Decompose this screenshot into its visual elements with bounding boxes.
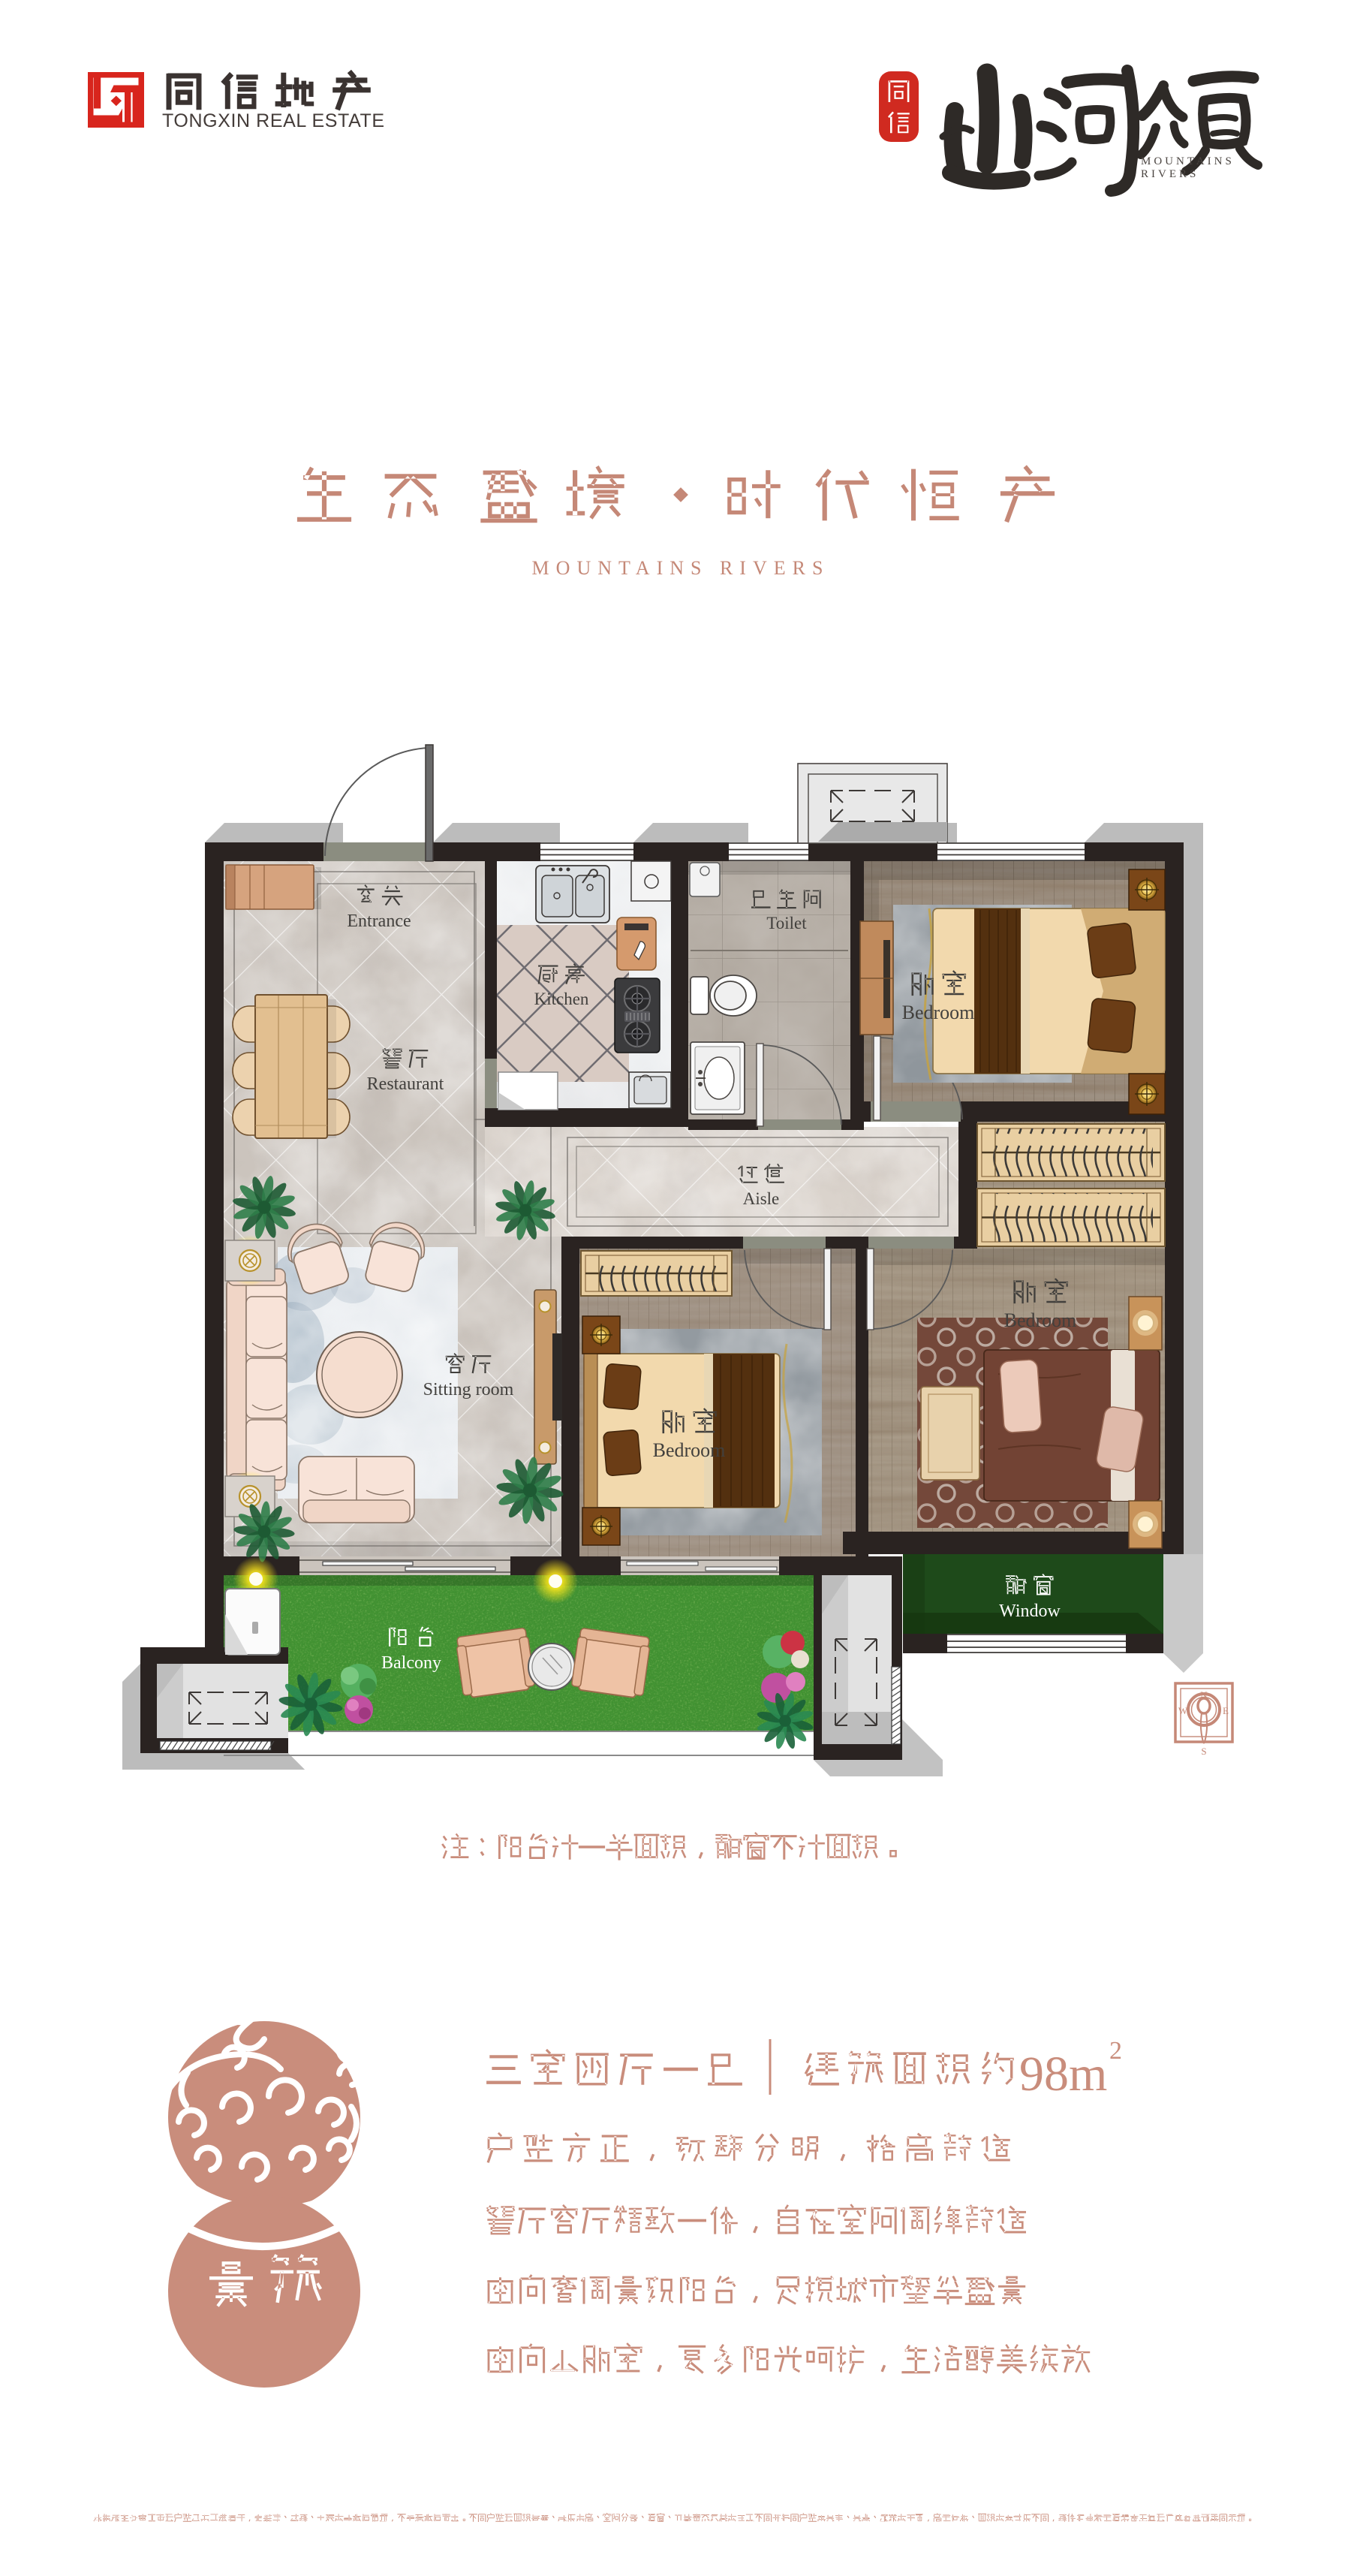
svg-text:Window: Window <box>999 1601 1061 1621</box>
svg-text:MOUNTAINS: MOUNTAINS <box>1141 155 1235 167</box>
svg-text:Entrance: Entrance <box>347 911 411 931</box>
svg-text:S: S <box>1201 1746 1206 1757</box>
svg-text:W: W <box>1178 1705 1188 1716</box>
svg-text:RIVERS: RIVERS <box>1141 168 1199 180</box>
svg-text:Kitchen: Kitchen <box>534 990 589 1008</box>
svg-text:Sitting room: Sitting room <box>423 1380 514 1399</box>
svg-text:Bedroom: Bedroom <box>902 1002 975 1023</box>
svg-text:TONGXIN REAL ESTATE: TONGXIN REAL ESTATE <box>162 110 385 131</box>
svg-text:Restaurant: Restaurant <box>367 1074 444 1094</box>
svg-text:N: N <box>1200 1689 1208 1701</box>
svg-text:Toilet: Toilet <box>766 914 807 932</box>
svg-text:E: E <box>1223 1705 1229 1716</box>
svg-text:Bedroom: Bedroom <box>653 1439 726 1461</box>
svg-text:Bedroom: Bedroom <box>1004 1309 1077 1331</box>
svg-text:MOUNTAINS RIVERS: MOUNTAINS RIVERS <box>532 557 830 579</box>
svg-text:Balcony: Balcony <box>381 1653 441 1673</box>
svg-text:2: 2 <box>1109 2037 1122 2065</box>
svg-text:Aisle: Aisle <box>743 1189 780 1208</box>
svg-text:98m: 98m <box>1019 2047 1107 2101</box>
